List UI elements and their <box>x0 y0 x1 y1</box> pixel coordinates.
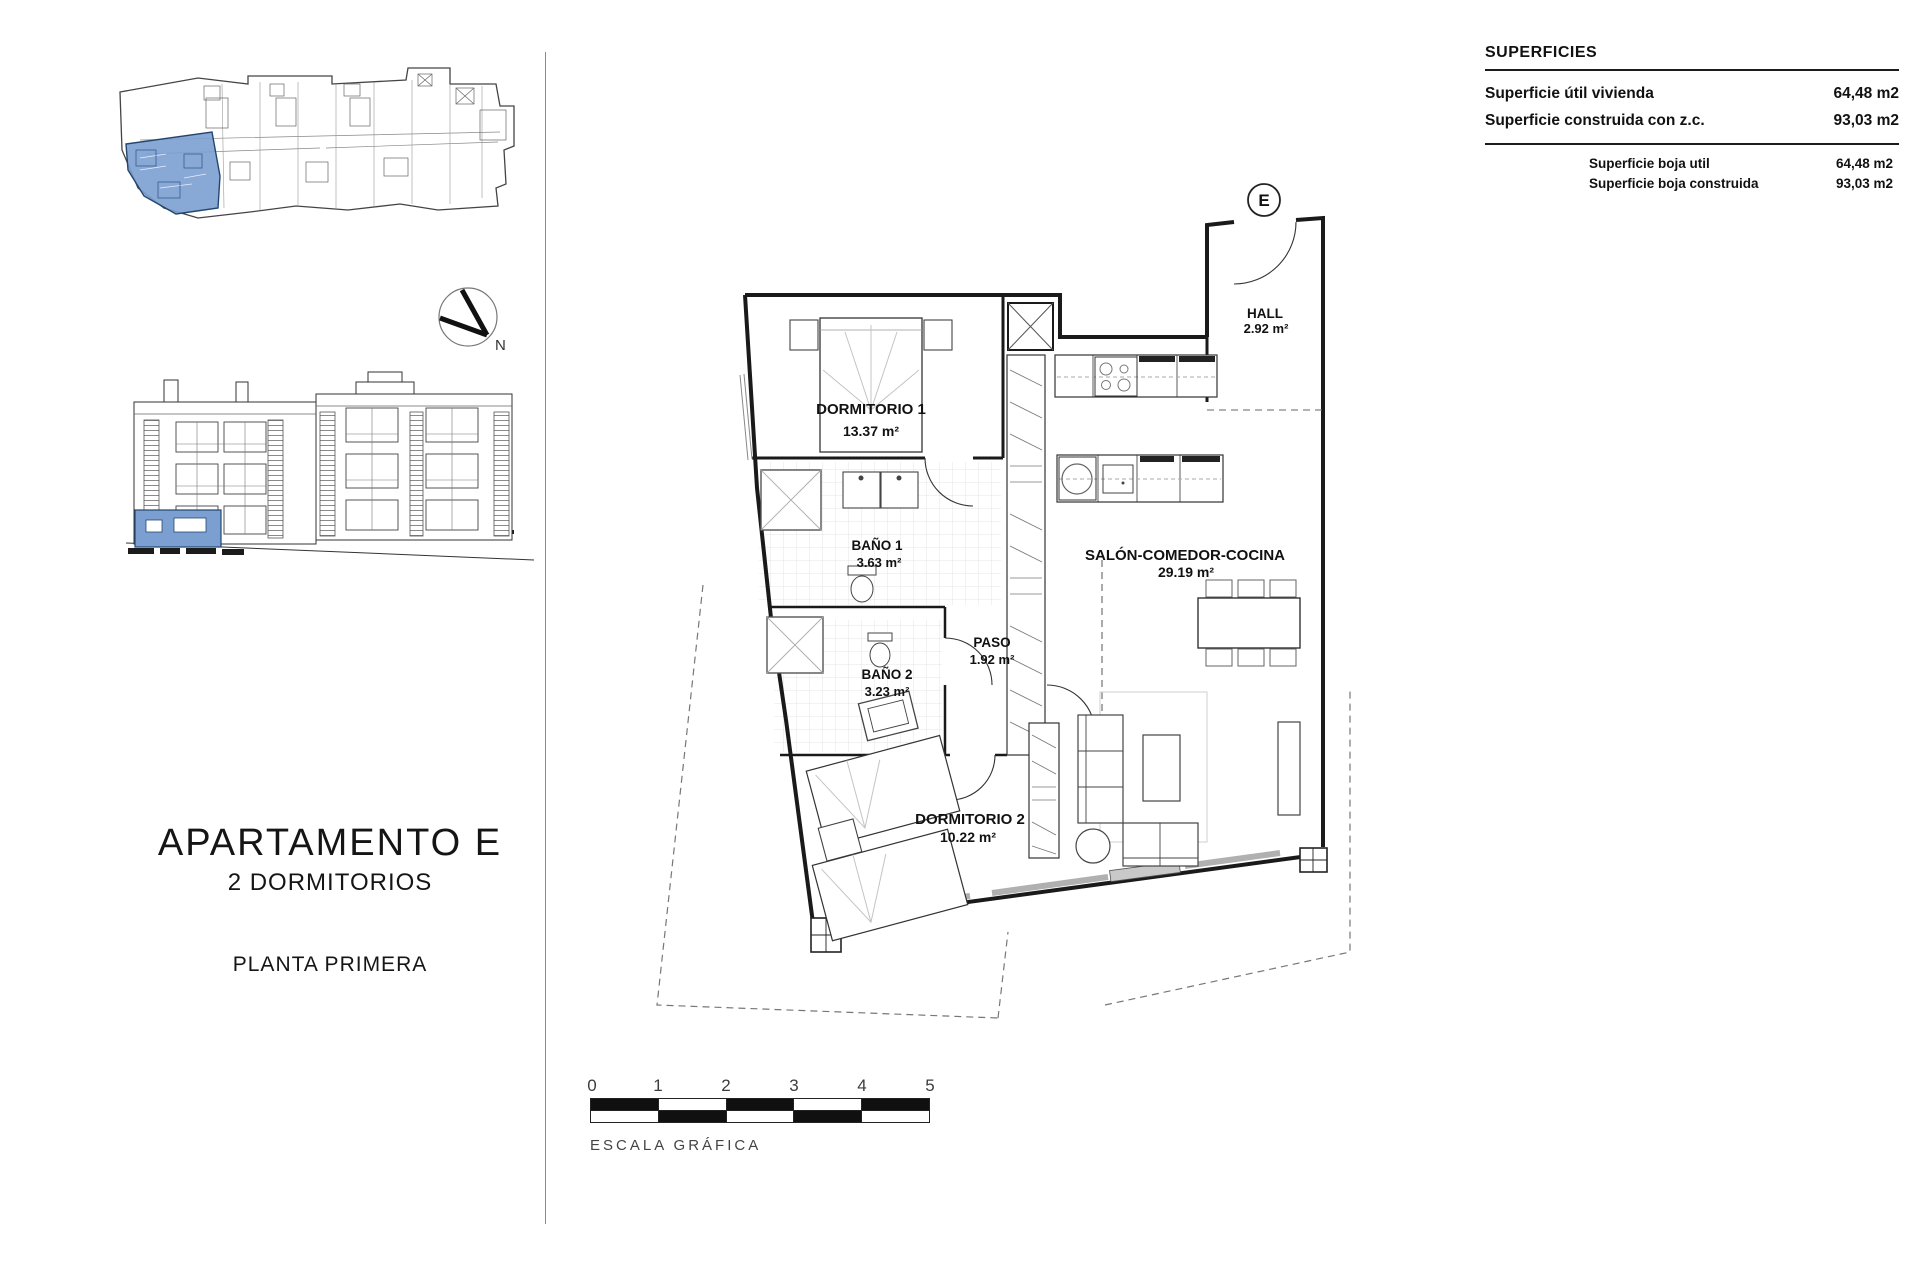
floor-label: PLANTA PRIMERA <box>105 953 555 977</box>
north-label: N <box>495 337 506 354</box>
room-label-salon: SALÓN-COMEDOR-COCINA <box>1085 546 1285 564</box>
graphic-scale: 0 1 2 3 4 5 ESCALA GRÁFICA <box>590 1076 930 1154</box>
table-row: Superficie boja util 64,48 m2 <box>1485 154 1899 174</box>
highlighted-unit-footprint <box>126 132 220 214</box>
scale-tick: 4 <box>857 1076 866 1096</box>
building-elevation <box>120 358 540 586</box>
room-area-dormitorio1: 13.37 m² <box>843 423 899 439</box>
key-plan-thumbnail <box>100 58 530 273</box>
main-floor-plan: E DORMITORIO 1 13.37 m² BAÑO 1 3.63 m² B… <box>640 170 1400 1030</box>
room-label-dormitorio1: DORMITORIO 1 <box>816 401 926 418</box>
area-label: Superficie construida con z.c. <box>1485 107 1705 134</box>
area-label: Superficie útil vivienda <box>1485 80 1654 107</box>
area-value: 93,03 m2 <box>1836 174 1893 194</box>
scale-tick: 3 <box>789 1076 798 1096</box>
title-block: APARTAMENTO E 2 DORMITORIOS PLANTA PRIME… <box>105 822 555 977</box>
room-area-salon: 29.19 m² <box>1158 564 1214 580</box>
scale-tick: 0 <box>587 1076 596 1096</box>
bedrooms-subtitle: 2 DORMITORIOS <box>105 869 555 897</box>
room-area-dormitorio2: 10.22 m² <box>940 829 996 845</box>
coffee-table-icon <box>1143 735 1180 801</box>
room-area-bano2: 3.23 m² <box>865 684 910 699</box>
unit-label: E <box>1258 191 1269 210</box>
area-label: Superficie boja util <box>1589 154 1710 174</box>
room-label-dormitorio2: DORMITORIO 2 <box>915 811 1025 828</box>
wardrobe-hatch <box>1007 355 1059 858</box>
room-label-bano1: BAÑO 1 <box>851 538 902 553</box>
room-label-bano2: BAÑO 2 <box>861 667 912 682</box>
kitchen-counters <box>1055 355 1223 502</box>
area-value: 64,48 m2 <box>1834 80 1900 107</box>
room-area-paso: 1.92 m² <box>970 652 1015 667</box>
side-table-icon <box>1076 829 1110 863</box>
unit-label-circle: E <box>1248 184 1280 216</box>
vanity-sinks-icon <box>843 472 918 508</box>
toilet-icon <box>868 633 892 667</box>
scale-tick: 1 <box>653 1076 662 1096</box>
floor-plan-sheet: N <box>0 0 1920 1280</box>
table-row: Superficie útil vivienda 64,48 m2 <box>1485 80 1899 107</box>
shaft-x-icon <box>1008 303 1053 350</box>
area-value: 64,48 m2 <box>1836 154 1893 174</box>
area-label: Superficie boja construida <box>1589 174 1759 194</box>
column-divider-line <box>545 52 546 1224</box>
scale-caption: ESCALA GRÁFICA <box>590 1137 930 1154</box>
shower-icon <box>767 617 823 673</box>
areas-table: SUPERFICIES Superficie útil vivienda 64,… <box>1485 44 1899 194</box>
areas-table-heading: SUPERFICIES <box>1485 44 1899 71</box>
scale-tick: 5 <box>925 1076 934 1096</box>
room-label-hall: HALL <box>1247 306 1283 321</box>
dining-table-icon <box>1198 580 1300 666</box>
scale-bar <box>590 1098 930 1123</box>
table-row: Superficie construida con z.c. 93,03 m2 <box>1485 107 1899 134</box>
area-value: 93,03 m2 <box>1834 107 1900 134</box>
room-area-hall: 2.92 m² <box>1244 321 1289 336</box>
tv-sideboard-icon <box>1278 722 1300 815</box>
scale-tick-labels: 0 1 2 3 4 5 <box>590 1076 930 1098</box>
room-area-bano1: 3.63 m² <box>857 555 902 570</box>
apartment-title: APARTAMENTO E <box>105 822 555 865</box>
room-label-paso: PASO <box>973 635 1010 650</box>
table-row: Superficie boja construida 93,03 m2 <box>1485 174 1899 194</box>
shower-icon <box>761 470 821 530</box>
scale-tick: 2 <box>721 1076 730 1096</box>
